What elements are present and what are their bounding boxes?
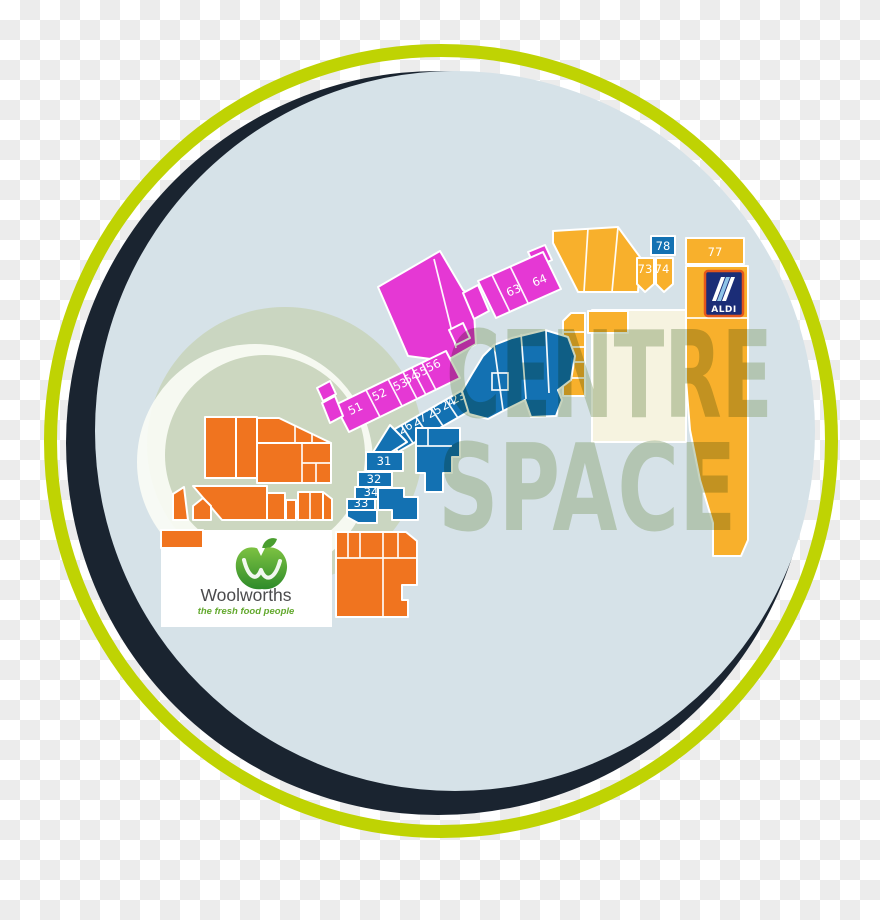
watermark-line2: SPACE xyxy=(438,420,736,559)
unit-number: 31 xyxy=(377,454,392,468)
woolworths-wordmark: Woolworths xyxy=(200,585,291,605)
map-block xyxy=(236,417,257,478)
map-block xyxy=(161,530,203,548)
unit-number: 77 xyxy=(708,245,723,259)
unit-number: 73 xyxy=(638,262,653,276)
centre-map: Woolworths the fresh food people xyxy=(0,0,880,920)
map-block xyxy=(553,227,640,292)
map-block xyxy=(286,500,296,520)
watermark-text: CENTRE SPACE xyxy=(438,305,773,559)
map-block xyxy=(267,493,285,520)
map-block xyxy=(205,417,236,478)
unit-number: 78 xyxy=(656,239,671,253)
unit-number: 74 xyxy=(655,262,670,276)
unit-number: 32 xyxy=(367,472,382,486)
transparent-checkerboard-canvas: Woolworths the fresh food people xyxy=(0,0,880,920)
unit-number: 33 xyxy=(354,496,369,510)
woolworths-tagline: the fresh food people xyxy=(198,606,295,617)
